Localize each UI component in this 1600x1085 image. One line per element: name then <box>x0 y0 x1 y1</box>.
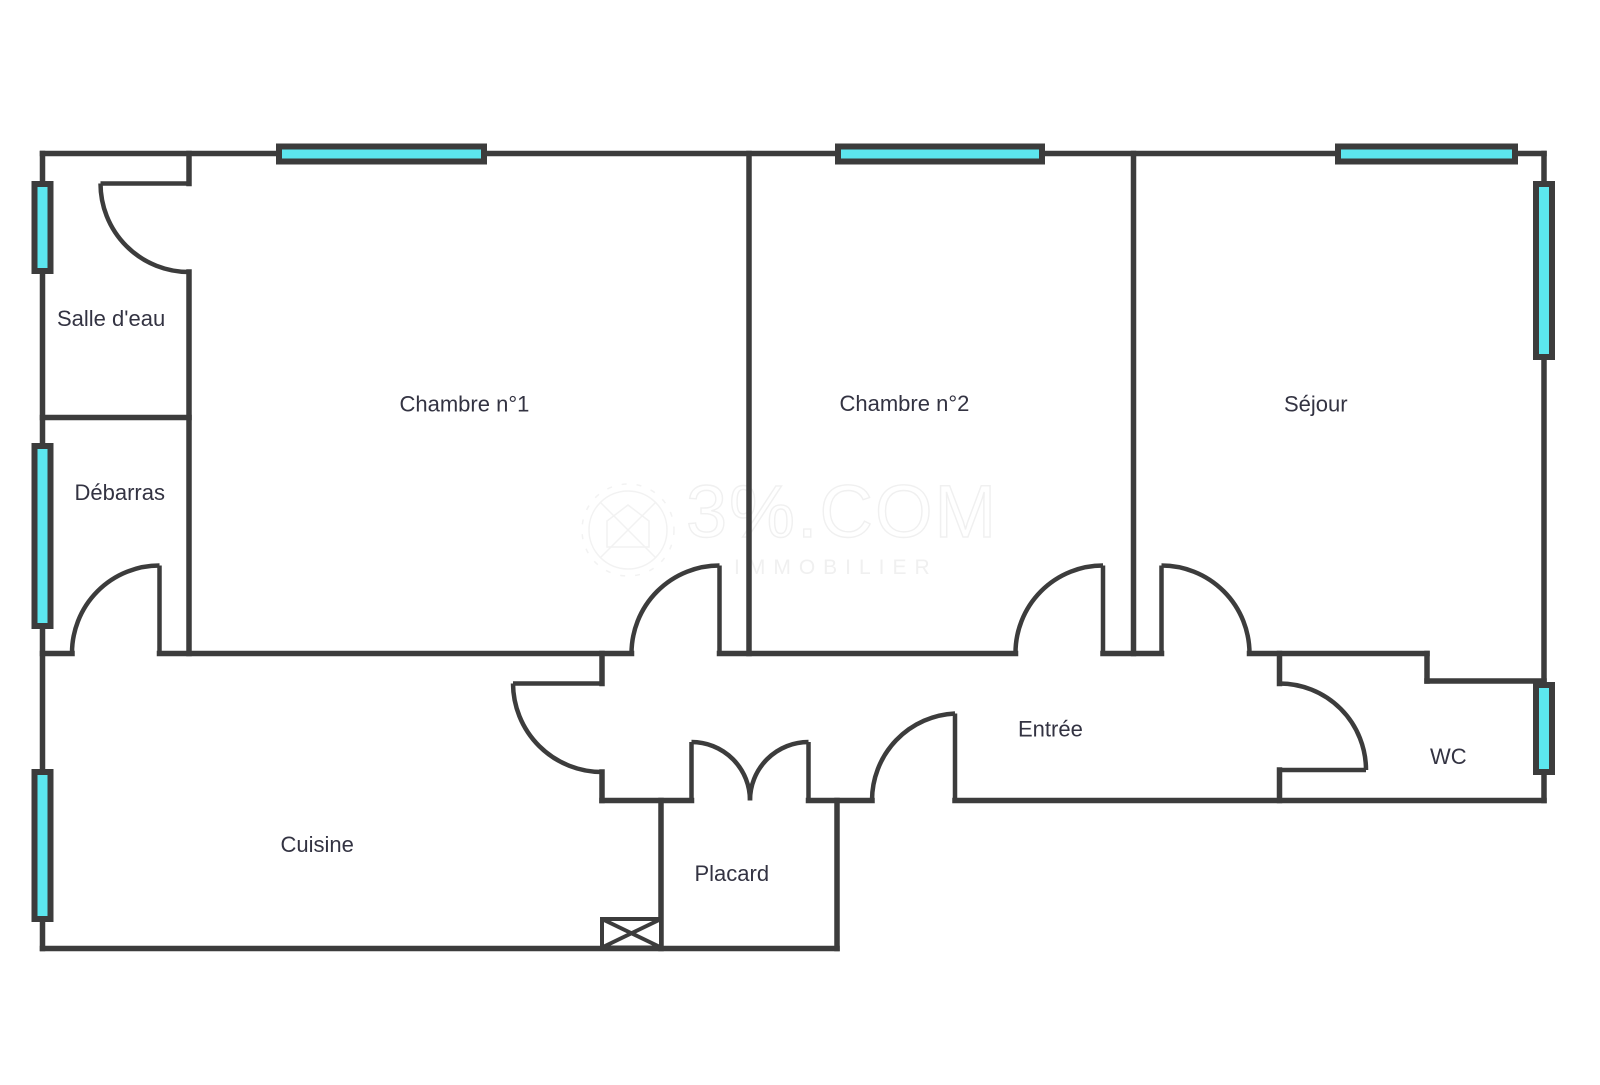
svg-text:Entrée: Entrée <box>1018 717 1083 742</box>
svg-text:3%.COM: 3%.COM <box>686 470 998 553</box>
svg-text:Chambre n°2: Chambre n°2 <box>840 391 970 416</box>
svg-text:Cuisine: Cuisine <box>281 832 354 857</box>
svg-text:Placard: Placard <box>695 861 770 886</box>
svg-text:Débarras: Débarras <box>75 480 165 505</box>
svg-text:Salle d'eau: Salle d'eau <box>57 306 165 331</box>
svg-text:Chambre n°1: Chambre n°1 <box>400 392 530 417</box>
svg-text:IMMOBILIER: IMMOBILIER <box>734 556 938 579</box>
svg-text:Séjour: Séjour <box>1284 392 1348 417</box>
svg-text:WC: WC <box>1430 744 1467 769</box>
